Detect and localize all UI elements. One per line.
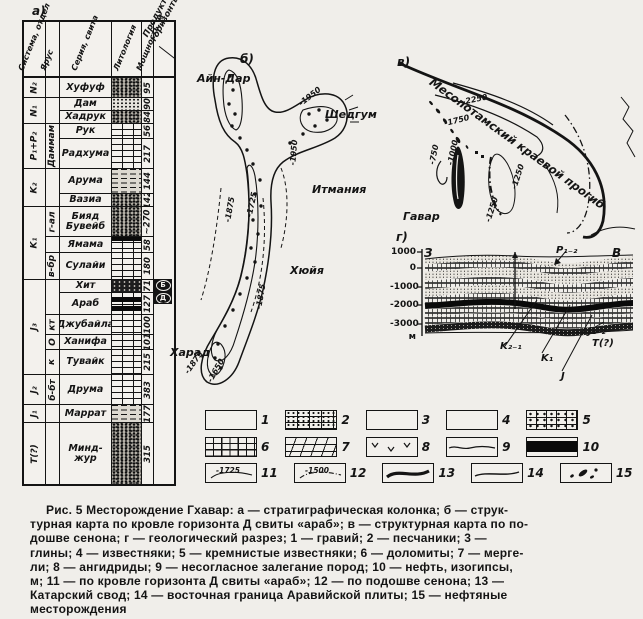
- east-label: В: [612, 246, 621, 260]
- siliceous-limestone-swatch-icon: [526, 410, 578, 430]
- thickness-value: 71: [143, 280, 153, 292]
- stage-label: б-бт: [48, 379, 58, 401]
- legend-row-3: -1725 11 -1500 12 13 14: [205, 463, 633, 483]
- formation-name: Радху­ма: [61, 149, 111, 159]
- caption-line: дошве сенона; г — геологический разрез; …: [30, 531, 618, 545]
- lithology-cell: [112, 78, 141, 98]
- strat-body: N₂ N₁ P₁+P₂ K₂ K₁ J₃ J₂ J₁ T(?) Даммам г…: [24, 78, 174, 484]
- legend-item-unconformity: 9: [446, 437, 510, 457]
- system-label: J₁: [29, 410, 39, 417]
- coastline: [591, 97, 635, 235]
- thickness-value: 101: [143, 335, 153, 350]
- stratigraphic-column: Система, отдел Ярус Серия, свита Литолог…: [22, 20, 176, 486]
- caption-line: Рис. 5 Месторождение Гхавар: а — стратиг…: [30, 503, 618, 517]
- formation-name: Вазиа: [68, 195, 102, 205]
- system-label: K₁: [29, 238, 39, 249]
- field-label-ghawar: Гавар: [403, 210, 440, 223]
- figure-caption: Рис. 5 Месторождение Гхавар: а — стратиг…: [30, 503, 618, 617]
- thickness-value: 217: [143, 145, 153, 163]
- lithology-cell: [112, 405, 141, 423]
- stage-label: г-ал: [48, 211, 58, 232]
- anhydrite-swatch-icon: [366, 437, 418, 457]
- lithology-cell: [112, 194, 141, 207]
- thickness-value: 84: [143, 111, 153, 123]
- panel-g-label: г): [396, 230, 408, 244]
- place-harad: Харад: [170, 346, 210, 359]
- legend-number: 2: [341, 413, 349, 427]
- lithology-cell: [112, 98, 141, 111]
- sandstone-swatch-icon: [285, 410, 337, 430]
- caption-line: глины; 4 — известняки; 5 — кремнистые из…: [30, 546, 618, 560]
- legend-number: 5: [582, 413, 590, 427]
- thickness-value: 95: [143, 82, 153, 94]
- legend-number: 8: [422, 440, 430, 454]
- system-label: K₂: [29, 182, 39, 193]
- caption-line: Катарский свод; 14 — восточная граница А…: [30, 588, 618, 602]
- formation-name: Хит: [75, 281, 97, 291]
- well-marker: [512, 252, 518, 258]
- stratum-label-k21: K₂₋₁: [500, 341, 522, 352]
- legend-number: 10: [582, 440, 599, 454]
- oil-swatch-icon: [526, 437, 578, 457]
- clay-swatch-icon: [366, 410, 418, 430]
- legend-item-dolomite: 6: [205, 437, 269, 457]
- thickness-value: 215: [143, 353, 153, 371]
- plate-boundary-swatch-icon: [471, 463, 523, 483]
- structure-map-arab: [185, 48, 360, 398]
- legend-row-2: 6 7 8 9 10: [205, 437, 599, 457]
- place-huyia: Хюйя: [290, 264, 324, 277]
- oil-fields-swatch-icon: [560, 463, 612, 483]
- legend-number: 12: [350, 466, 367, 480]
- legend-item-clay: 3: [366, 410, 430, 430]
- depth-unit: м: [390, 332, 416, 342]
- formation-name: Хадрук: [64, 112, 107, 122]
- legend-item-isohypse-arab: -1725 11: [205, 463, 278, 483]
- lithology-cell: [112, 111, 141, 124]
- thickness-value: 90: [143, 98, 153, 110]
- oil-horizon-markers: Б Д: [154, 280, 172, 304]
- stratum-label-k1: K₁: [541, 353, 553, 364]
- lithology-cell: [112, 315, 141, 335]
- figure-page: а) Система, отдел Ярус Серия, свита Лито…: [0, 0, 643, 619]
- lithology-cell: [112, 169, 141, 194]
- strata-bands: [425, 255, 633, 333]
- legend-item-gravel: 1: [205, 410, 269, 430]
- formation-name: Бияд Бувейб: [60, 212, 111, 232]
- stage-label: к: [47, 359, 57, 365]
- stratum-label-j: J: [561, 371, 565, 382]
- legend-number: 7: [341, 440, 349, 454]
- header-stage: Ярус: [46, 22, 60, 76]
- thickness-value: ~270: [143, 209, 153, 234]
- caption-line: ли; 8 — ангидриды; 9 — несогласное залег…: [30, 560, 618, 574]
- caption-line: месторождения: [30, 602, 618, 616]
- formation-name: Тувайк: [65, 357, 105, 367]
- thickness-value: 127: [143, 295, 153, 313]
- legend-number: 6: [261, 440, 269, 454]
- system-label: N₂: [29, 82, 39, 93]
- formation-name: Рук: [75, 126, 97, 136]
- caption-line: турная карта по кровле горизонта Д свиты…: [30, 517, 618, 531]
- thickness-value: 180: [143, 257, 153, 275]
- legend-item-siliceous-limestone: 5: [526, 410, 590, 430]
- iso-arab-value: -1725: [216, 466, 240, 475]
- header-series: Серия, свита: [60, 22, 112, 76]
- stage-label: кт: [47, 319, 57, 330]
- lithology-cell: [112, 280, 141, 293]
- lithology-cell: [112, 124, 141, 139]
- lithology-cell: [112, 375, 141, 405]
- legend-item-oil: 10: [526, 437, 599, 457]
- column-lithology: [112, 78, 142, 484]
- lithology-cell: [112, 207, 141, 237]
- legend-number: 11: [261, 466, 278, 480]
- legend-number: 9: [502, 440, 510, 454]
- cross-section: [390, 243, 640, 395]
- limestone-swatch-icon: [446, 410, 498, 430]
- formation-name: Минд­жур: [60, 444, 111, 464]
- contour-dashed-huyia: [281, 168, 287, 248]
- header-lithology-label: Литология: [112, 24, 139, 72]
- legend-number: 14: [527, 466, 544, 480]
- marl-swatch-icon: [285, 437, 337, 457]
- legend-item-qatar-arch: 13: [382, 463, 455, 483]
- lithology-cell: [112, 423, 141, 484]
- qatar-arch-swatch-icon: [382, 463, 434, 483]
- system-label: N₁: [29, 105, 39, 116]
- unconformity-swatch-icon: [446, 437, 498, 457]
- place-ain-dar: Айн-Дар: [197, 72, 250, 85]
- lithology-cell: [112, 335, 141, 350]
- thickness-value: 100: [143, 316, 153, 334]
- legend-number: 1: [261, 413, 269, 427]
- column-stage: Даммам г-ал в-бр кт О к б-бт: [46, 78, 60, 484]
- thickness-value: 383: [143, 381, 153, 399]
- stage-label: Даммам: [48, 125, 58, 167]
- thickness-value: 58: [143, 239, 153, 251]
- depth-tick: -3000: [390, 319, 416, 329]
- legend-number: 15: [616, 466, 633, 480]
- iso-senonian-value: -1500: [305, 466, 329, 475]
- stage-label: О: [48, 338, 58, 346]
- legend-item-oil-fields: 15: [560, 463, 633, 483]
- formation-name: Араб: [71, 299, 100, 309]
- contour-dashed-west: [201, 188, 221, 300]
- lithology-cell: [112, 350, 141, 375]
- stratum-label-j12: J₁₋₂: [588, 326, 606, 337]
- thickness-value: 56: [143, 125, 153, 137]
- thickness-value: 144: [143, 172, 153, 190]
- lithology-cell: [112, 253, 141, 280]
- isohypse-senonian-swatch-icon: -1500: [294, 463, 346, 483]
- formation-name: Джубайла: [60, 320, 111, 330]
- header-series-label: Серия, свита: [70, 14, 100, 72]
- thickness-value: 142: [143, 194, 153, 207]
- isohypse-arab-swatch-icon: -1725: [205, 463, 257, 483]
- column-series: Хуфуф Дам Хадрук Рук Радху­ма Арума Вази…: [60, 78, 112, 484]
- formation-name: Ханифа: [63, 337, 108, 347]
- depth-tick: -1000: [390, 282, 416, 292]
- contour-west-small: [437, 161, 447, 184]
- dolomite-swatch-icon: [205, 437, 257, 457]
- lithology-cell: [112, 237, 141, 253]
- formation-name: Маррат: [64, 409, 107, 419]
- stratum-label-t: T(?): [592, 338, 614, 349]
- depth-tick: 1000: [390, 247, 416, 257]
- legend-item-limestone: 4: [446, 410, 510, 430]
- system-label: J₂: [29, 386, 39, 393]
- lithology-cell: [112, 293, 141, 315]
- oil-horizon-marker: Д: [156, 293, 171, 304]
- place-itmania: Итмания: [312, 183, 366, 196]
- system-label: T(?): [30, 444, 40, 464]
- column-productive: Б Д: [154, 78, 172, 484]
- legend-item-anhydrite: 8: [366, 437, 430, 457]
- formation-name: Хуфуф: [65, 83, 106, 93]
- place-shedgum: Шедгум: [325, 108, 377, 121]
- legend-item-sandstone: 2: [285, 410, 349, 430]
- legend-number: 4: [502, 413, 510, 427]
- thickness-value: 315: [143, 445, 153, 463]
- legend-row-1: 1 2 3 4 5: [205, 410, 591, 430]
- depth-tick: 0: [390, 263, 416, 273]
- legend-item-plate-boundary: 14: [471, 463, 544, 483]
- legend-number: 13: [438, 466, 455, 480]
- formation-name: Друма: [67, 385, 105, 395]
- stage-label: в-бр: [48, 255, 58, 277]
- column-thickness: 95 90 84 56 217 144 142 ~270 58 180 71 1…: [142, 78, 154, 484]
- caption-line: м; 11 — по кровле горизонта Д свиты «ара…: [30, 574, 618, 588]
- formation-name: Сулайи: [65, 261, 107, 271]
- stratum-label-p12: P₁₋₂: [556, 245, 577, 256]
- formation-name: Дам: [73, 99, 98, 109]
- oil-horizon-marker: Б: [156, 280, 171, 291]
- thickness-value: 177: [143, 405, 153, 422]
- lithology-cell: [112, 139, 141, 169]
- column-system: N₂ N₁ P₁+P₂ K₂ K₁ J₃ J₂ J₁ T(?): [24, 78, 46, 484]
- formation-name: Ямама: [67, 240, 105, 250]
- system-label: P₁+P₂: [30, 132, 40, 161]
- west-label: З: [424, 246, 433, 260]
- legend-item-marl: 7: [285, 437, 349, 457]
- legend-item-isohypse-senonian: -1500 12: [294, 463, 367, 483]
- formation-name: Арума: [67, 176, 104, 186]
- depth-tick: -2000: [390, 300, 416, 310]
- gravel-swatch-icon: [205, 410, 257, 430]
- legend-number: 3: [422, 413, 430, 427]
- system-label: J₃: [29, 323, 39, 330]
